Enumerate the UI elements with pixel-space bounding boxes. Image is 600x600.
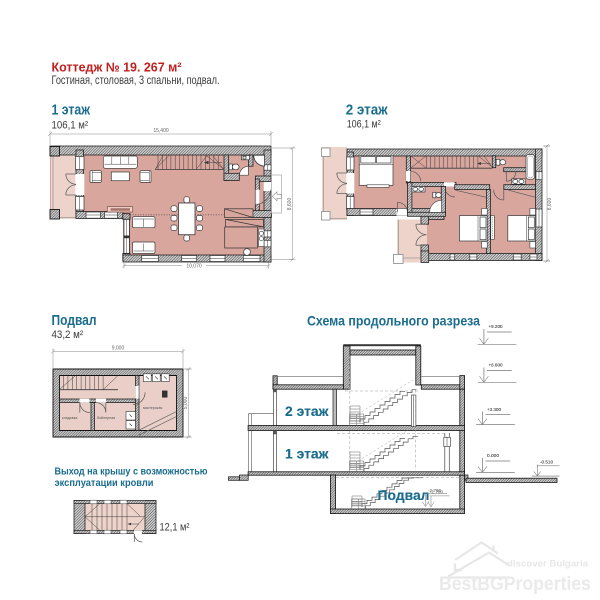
svg-text:+9.200: +9.200 (489, 324, 503, 330)
svg-text:1 этаж: 1 этаж (52, 103, 91, 119)
svg-text:2 этаж: 2 этаж (285, 403, 329, 419)
svg-text:+6.600: +6.600 (489, 363, 503, 369)
svg-text:кладовка: кладовка (62, 416, 77, 420)
svg-text:discover Bulgaria: discover Bulgaria (507, 559, 589, 570)
svg-text:Выход на крышу с возможностью: Выход на крышу с возможностью (55, 467, 208, 478)
svg-text:0.000: 0.000 (487, 453, 499, 459)
svg-text:Гостиная, столовая, 3 спальни,: Гостиная, столовая, 3 спальни, подвал. (52, 75, 220, 87)
svg-text:15,400: 15,400 (153, 128, 169, 134)
svg-text:BestBGProperties: BestBGProperties (439, 574, 591, 595)
svg-text:бойлерная: бойлерная (97, 416, 115, 420)
svg-text:-2.700: -2.700 (428, 488, 441, 494)
svg-text:12,1 м²: 12,1 м² (160, 522, 190, 534)
svg-text:8,600: 8,600 (287, 198, 293, 211)
svg-text:Коттедж № 19. 267 м²: Коттедж № 19. 267 м² (52, 60, 183, 75)
svg-text:2 этаж: 2 этаж (346, 103, 389, 119)
svg-text:мастерская: мастерская (143, 406, 162, 410)
svg-text:10,070: 10,070 (186, 264, 202, 270)
svg-text:106,1 м²: 106,1 м² (52, 119, 89, 131)
svg-text:5,000: 5,000 (183, 397, 189, 410)
svg-text:1 этаж: 1 этаж (285, 446, 329, 462)
svg-text:Схема продольного разреза: Схема продольного разреза (307, 313, 480, 329)
svg-text:-0.510: -0.510 (540, 459, 553, 465)
svg-text:8,600: 8,600 (547, 198, 553, 211)
svg-text:Подвал: Подвал (378, 487, 430, 503)
svg-text:эксплуатации кровли: эксплуатации кровли (55, 478, 154, 489)
svg-text:9,000: 9,000 (112, 346, 125, 352)
svg-text:106,1 м²: 106,1 м² (347, 119, 381, 131)
svg-text:43,2 м²: 43,2 м² (52, 329, 84, 341)
svg-text:Подвал: Подвал (52, 313, 97, 329)
svg-text:+3.300: +3.300 (487, 407, 501, 413)
